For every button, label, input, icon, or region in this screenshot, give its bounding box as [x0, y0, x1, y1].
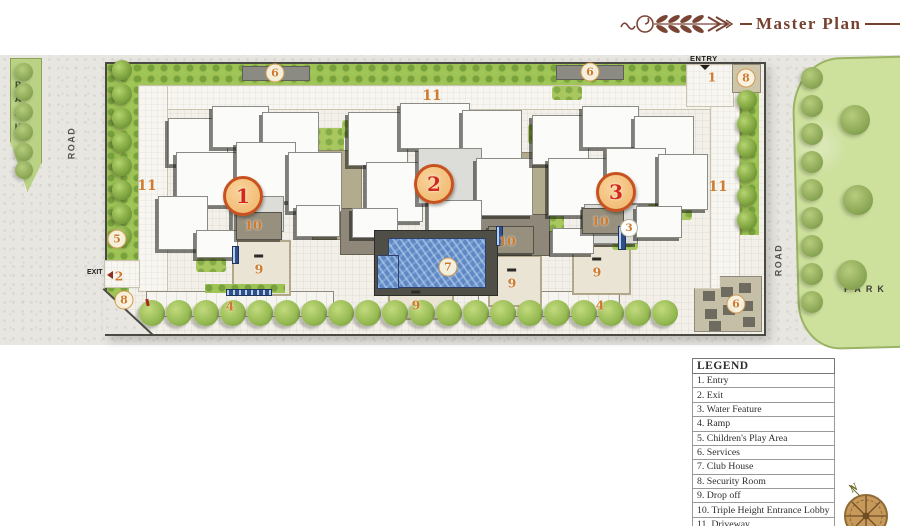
- park-tree: [801, 67, 823, 89]
- bush: [247, 300, 273, 326]
- garden-patch: [196, 258, 226, 272]
- bush: [571, 300, 597, 326]
- building-block: [658, 154, 708, 210]
- bush: [625, 300, 651, 326]
- marker-6: 6: [266, 64, 285, 83]
- marker-11: 11: [137, 178, 156, 194]
- marker-10: 10: [498, 234, 515, 249]
- marker-9: 9: [508, 276, 517, 291]
- building-block: [476, 158, 533, 216]
- marker-10: 10: [591, 214, 608, 229]
- bush: [490, 300, 516, 326]
- tree: [737, 186, 757, 206]
- bush: [517, 300, 543, 326]
- marker-1: 1: [708, 70, 717, 85]
- title-rule-right: [865, 23, 900, 25]
- marker-5: 5: [108, 230, 127, 249]
- building-block: [288, 152, 342, 212]
- park-tree: [801, 235, 823, 257]
- bush: [328, 300, 354, 326]
- title-rule-left: [740, 23, 752, 25]
- marker-9: 9: [412, 298, 421, 313]
- bush: [436, 300, 462, 326]
- marker-4: 4: [596, 298, 605, 313]
- swimming-pool: [388, 238, 486, 288]
- building-block: [428, 200, 482, 234]
- legend-header: LEGEND: [693, 359, 835, 374]
- marker-3: 3: [620, 219, 638, 237]
- park-tree: [801, 151, 823, 173]
- water-feature: [232, 246, 239, 264]
- bush: [166, 300, 192, 326]
- compass-north-label: N: [846, 481, 861, 496]
- legend-row: 1. Entry: [693, 374, 835, 388]
- bush: [544, 300, 570, 326]
- marker-10: 10: [244, 218, 261, 233]
- legend-row: 7. Club House: [693, 460, 835, 474]
- building-block: [582, 106, 639, 148]
- marker-2: 2: [414, 164, 454, 204]
- park-tree: [837, 260, 867, 290]
- tree: [737, 210, 757, 230]
- park-tree: [15, 161, 33, 179]
- park-tree: [15, 123, 33, 141]
- tree: [112, 132, 132, 152]
- green-band-top: [108, 64, 758, 85]
- driveway-right: [710, 86, 740, 306]
- tree: [112, 180, 132, 200]
- bush: [274, 300, 300, 326]
- tree: [112, 108, 132, 128]
- marker-1: 1: [223, 176, 263, 216]
- tree: [112, 84, 132, 104]
- park-tree: [801, 207, 823, 229]
- bush: [139, 300, 165, 326]
- exit-arrow-icon: [107, 271, 113, 279]
- legend-row: 4. Ramp: [693, 417, 835, 431]
- compass-icon: N: [836, 480, 894, 526]
- legend-table: LEGEND 1. Entry2. Exit3. Water Feature4.…: [692, 358, 835, 526]
- park-tree: [15, 63, 33, 81]
- bush: [301, 300, 327, 326]
- water-feature: [226, 289, 272, 296]
- page-title: Master Plan: [756, 14, 861, 34]
- bush: [355, 300, 381, 326]
- exit-label: EXIT: [87, 269, 103, 276]
- park-tree: [15, 83, 33, 101]
- park-tree: [801, 95, 823, 117]
- marker-9: 9: [593, 265, 602, 280]
- services-unit: [705, 309, 717, 319]
- marker-11: 11: [422, 88, 441, 104]
- legend-row: 9. Drop off: [693, 489, 835, 503]
- marker-7: 7: [439, 258, 458, 277]
- legend-row: 2. Exit: [693, 388, 835, 402]
- tree: [737, 90, 757, 110]
- legend-row: 11. Driveway: [693, 517, 835, 526]
- tree: [737, 138, 757, 158]
- marker-3: 3: [596, 172, 636, 212]
- bush: [193, 300, 219, 326]
- park-tree: [840, 105, 870, 135]
- services-unit: [709, 321, 721, 331]
- tree: [737, 114, 757, 134]
- tree: [112, 156, 132, 176]
- entry-arrow-icon: [700, 65, 710, 70]
- road-right-label: ROAD: [773, 244, 783, 277]
- park-tree: [801, 291, 823, 313]
- services-unit: [739, 283, 751, 293]
- legend-row: 5. Children's Play Area: [693, 431, 835, 445]
- bush: [463, 300, 489, 326]
- header: Master Plan: [618, 8, 900, 40]
- building-block: [400, 103, 470, 149]
- park-tree: [801, 263, 823, 285]
- park-tree: [15, 143, 33, 161]
- park-tree: [801, 179, 823, 201]
- legend: LEGEND 1. Entry2. Exit3. Water Feature4.…: [692, 358, 823, 526]
- park-tree: [15, 103, 33, 121]
- marker-9: 9: [255, 262, 264, 277]
- garden-patch: [552, 86, 582, 100]
- marker-6: 6: [581, 63, 600, 82]
- bush: [652, 300, 678, 326]
- park-tree: [843, 185, 873, 215]
- marker-4: 4: [226, 299, 235, 314]
- tree: [112, 204, 132, 224]
- entry-label: ENTRY: [690, 54, 718, 63]
- marker-8: 8: [115, 291, 134, 310]
- legend-row: 6. Services: [693, 445, 835, 459]
- legend-row: 10. Triple Height Entrance Lobby: [693, 503, 835, 517]
- marker-11: 11: [708, 179, 727, 195]
- services-unit: [743, 317, 755, 327]
- marker-2: 2: [115, 269, 124, 284]
- legend-row: 3. Water Feature: [693, 402, 835, 416]
- leaf-ornament-icon: [618, 8, 736, 40]
- tree: [737, 162, 757, 182]
- master-plan-page: Master Plan PARK ROAD PARK ROAD 12358866…: [0, 0, 900, 526]
- building-block: [348, 112, 408, 166]
- building-block: [296, 205, 340, 237]
- building-block: [636, 206, 682, 238]
- legend-row: 8. Security Room: [693, 474, 835, 488]
- marker-6: 6: [727, 295, 746, 314]
- road-left-label: ROAD: [66, 127, 76, 160]
- tree: [112, 60, 132, 80]
- bush: [382, 300, 408, 326]
- kids-pool: [377, 255, 399, 289]
- services-unit: [703, 291, 715, 301]
- park-tree: [801, 123, 823, 145]
- marker-8: 8: [737, 69, 756, 88]
